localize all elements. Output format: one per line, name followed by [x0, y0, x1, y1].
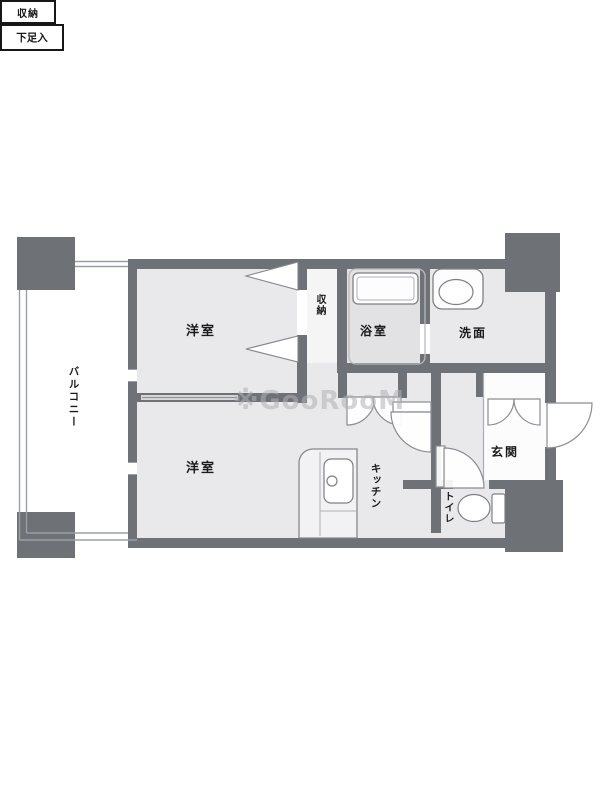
- bedroom-top-label: 洋室: [186, 320, 216, 339]
- bedroom-bottom-label: 洋室: [186, 457, 216, 476]
- closet-door-triangle-bottom: [246, 336, 298, 362]
- toilet-bowl-icon: [458, 495, 490, 522]
- shoe-cabinet-door-arc-right: [514, 399, 540, 425]
- kitchen-label: キッチン: [370, 463, 381, 509]
- shoe-cabinet-door-arc-left: [488, 399, 514, 425]
- closet-door-triangle-top: [246, 262, 298, 290]
- bathtub-icon: [353, 273, 418, 304]
- bathroom-label: 浴室: [360, 322, 388, 339]
- basin-bowl-icon: [439, 280, 473, 305]
- closet-top-label: 収納: [314, 294, 324, 316]
- balcony-label: バルコニー: [68, 366, 79, 429]
- washroom-label: 洗面: [459, 324, 487, 341]
- toilet-tank-icon: [492, 494, 505, 523]
- entrance-label: 玄関: [491, 443, 519, 460]
- watermark: ※GooRooM: [233, 386, 405, 416]
- faucet-icon: [327, 476, 337, 486]
- floorplan-canvas: バルコニー 洋室 洋室 収納 浴室 洗面 収納 下足入 玄関 キッチン トイレ …: [0, 0, 600, 800]
- toilet-label: トイレ: [442, 491, 452, 524]
- entrance-door-arc: [547, 403, 592, 448]
- toilet-door-arc: [444, 448, 484, 488]
- hall-door-arc: [391, 412, 431, 452]
